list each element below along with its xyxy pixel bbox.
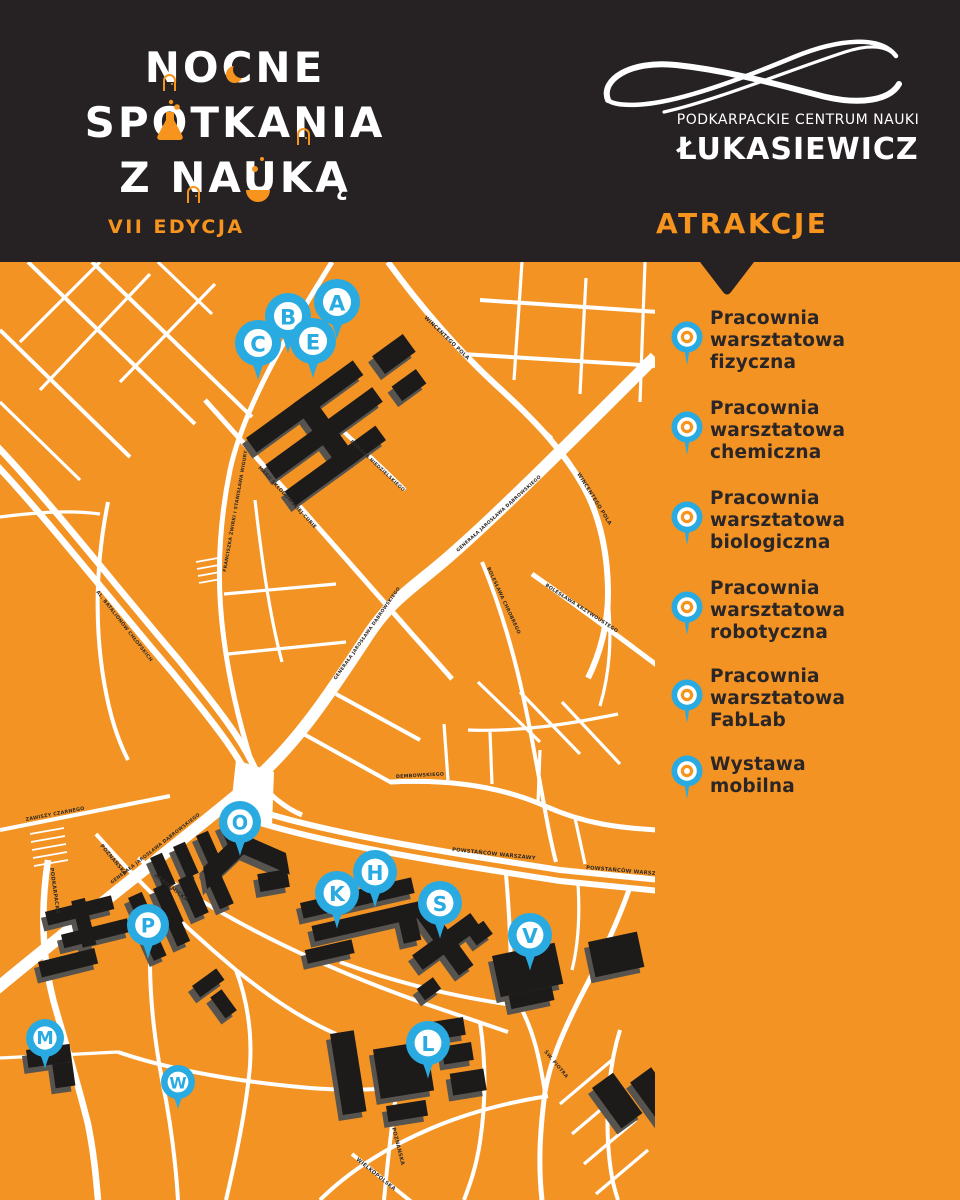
event-logo: NOCNE SPOTKANIA Z NAUKĄ (75, 40, 395, 205)
legend-item-chemiczna: Pracownia warsztatowa chemiczna (669, 398, 939, 464)
street-label: WINCENTEGO POLA (423, 315, 471, 361)
event-title-line1: NOCNE (75, 40, 395, 95)
map-pin-letter: C (250, 332, 266, 357)
legend-item-wystawa-mobilna: Wystawa mobilna (669, 754, 939, 798)
map-pin-letter: O (232, 812, 248, 835)
legend-line: robotyczna (710, 622, 939, 644)
legend-line: warsztatowa (710, 600, 939, 622)
legend-line: warsztatowa (710, 688, 939, 710)
legend-line: Pracownia (710, 578, 939, 600)
legend-line: chemiczna (710, 442, 939, 464)
street-label: GENERAŁA JAROSŁAWA DĄBROWSKIEGO (333, 586, 402, 681)
legend-line: warsztatowa (710, 510, 939, 532)
legend-line: mobilna (710, 776, 939, 798)
map-pin-icon (669, 678, 705, 728)
street-label: POZNAŃSKA (98, 842, 129, 877)
legend-line: Pracownia (710, 398, 939, 420)
header: NOCNE SPOTKANIA Z NAUKĄ VII EDYCJA PODKA… (0, 0, 960, 262)
street-label: WINCENTEGO POLA (575, 472, 612, 527)
legend-item-fizyczna: Pracownia warsztatowa fizyczna (669, 308, 939, 374)
lukasiewicz-swoosh-logo (598, 24, 910, 116)
city-map-svg: WINCENTEGO POLAWINCENTEGO POLAFRANCISZKA… (0, 262, 655, 1200)
map-pin-icon (669, 320, 705, 370)
legend-line: warsztatowa (710, 330, 939, 352)
attractions-heading: ATRAKCJE (656, 207, 828, 240)
poster: NOCNE SPOTKANIA Z NAUKĄ VII EDYCJA PODKA… (0, 0, 960, 1200)
map-pin-letter: E (306, 330, 320, 355)
map-pin-letter: W (169, 1074, 186, 1093)
legend-line: fizyczna (710, 352, 939, 374)
city-map: WINCENTEGO POLAWINCENTEGO POLAFRANCISZKA… (0, 262, 655, 1200)
street-label: WIELKOPOLSKA (355, 1157, 397, 1192)
legend-pointer-triangle (699, 262, 755, 298)
street-label: PODKARPACKA (48, 867, 60, 914)
map-pin-c[interactable]: C (235, 320, 281, 380)
legend-item-robotyczna: Pracownia warsztatowa robotyczna (669, 578, 939, 644)
map-pin-letter: B (280, 305, 296, 330)
legend-line: Pracownia (710, 488, 939, 510)
event-title-line3: Z NAUKĄ (75, 150, 395, 205)
attractions-legend: Pracownia warsztatowa fizyczna Pracownia… (655, 262, 960, 1200)
map-pin-icon (669, 590, 705, 640)
org-name-top: PODKARPACKIE CENTRUM NAUKI (640, 112, 956, 128)
street-label: GENERAŁA JAROSŁAWA DĄBROWSKIEGO (455, 474, 542, 553)
legend-line: Pracownia (710, 666, 939, 688)
map-pin-icon (669, 500, 705, 550)
legend-item-biologiczna: Pracownia warsztatowa biologiczna (669, 488, 939, 554)
legend-line: FabLab (710, 710, 939, 732)
map-pin-icon (669, 754, 705, 804)
org-name-bottom: ŁUKASIEWICZ (640, 132, 956, 167)
street-label: DEMBOWSKIEGO (396, 771, 445, 780)
map-pin-letter: A (329, 291, 346, 316)
map-pin-e[interactable]: E (290, 318, 336, 378)
legend-line: Wystawa (710, 754, 939, 776)
edition-label: VII EDYCJA (108, 216, 245, 238)
legend-line: warsztatowa (710, 420, 939, 442)
map-pin-letter: M (36, 1029, 53, 1049)
map-pin-letter: H (367, 861, 384, 885)
legend-item-fablab: Pracownia warsztatowa FabLab (669, 666, 939, 732)
map-pin-letter: S (433, 892, 448, 916)
map-pin-letter: P (141, 915, 155, 938)
legend-line: Pracownia (710, 308, 939, 330)
map-pin-letter: L (422, 1032, 435, 1056)
map-pin-icon (669, 410, 705, 460)
event-title-line2: SPOTKANIA (75, 95, 395, 150)
map-pin-letter: V (522, 924, 538, 948)
map-pin-letter: K (329, 882, 346, 906)
legend-line: biologiczna (710, 532, 939, 554)
